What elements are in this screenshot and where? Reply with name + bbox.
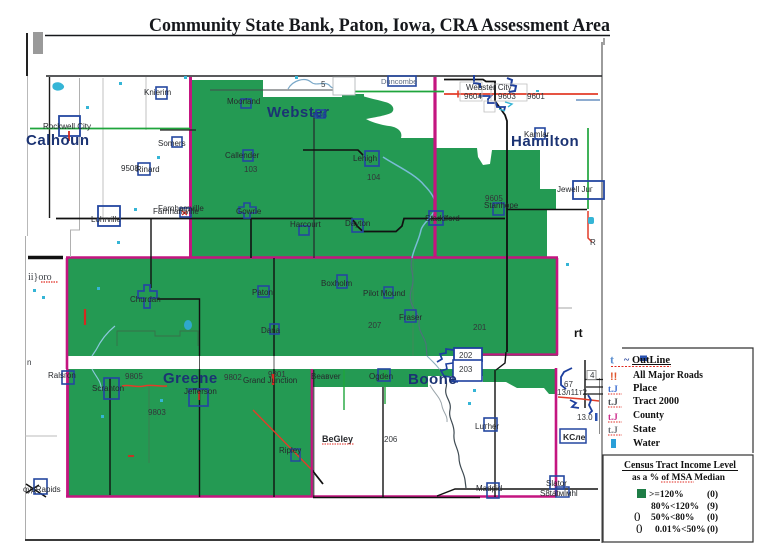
svg-text:Census Tract Income Level: Census Tract Income Level <box>624 460 736 471</box>
svg-text:All Major Roads: All Major Roads <box>633 370 703 381</box>
svg-text:(0): (0) <box>707 512 718 523</box>
svg-text:Jefferson: Jefferson <box>184 387 217 396</box>
svg-text:Tract 2000: Tract 2000 <box>633 396 679 407</box>
svg-text:Pilot Mound: Pilot Mound <box>363 289 405 298</box>
svg-text:Gowrie: Gowrie <box>236 207 262 216</box>
svg-text:>=120%: >=120% <box>649 490 684 500</box>
svg-text:n: n <box>27 358 31 367</box>
svg-text:Luтher: Luтher <box>475 422 499 431</box>
svg-text:13л11т2: 13л11т2 <box>557 388 588 397</box>
svg-text:Scranton: Scranton <box>92 384 124 393</box>
svg-text:Kamlar: Kamlar <box>524 130 550 139</box>
svg-text:9603: 9603 <box>498 92 516 101</box>
svg-text:Knierim: Knierim <box>144 88 171 97</box>
svg-text:Fraser: Fraser <box>399 313 422 322</box>
svg-text:80%<120%: 80%<120% <box>651 502 699 512</box>
svg-text:13.0: 13.0 <box>577 413 593 422</box>
svg-text:Ogden: Ogden <box>369 372 393 381</box>
svg-text:Moorland: Moorland <box>227 97 260 106</box>
svg-text:as a % of MSA Median: as a % of MSA Median <box>632 473 726 483</box>
svg-text:203: 203 <box>459 365 473 374</box>
svg-text:Calhoun: Calhoun <box>26 132 90 149</box>
svg-text:207: 207 <box>368 321 382 330</box>
svg-text:Callender: Callender <box>225 151 260 160</box>
svg-text:Slаtоr: Slаtоr <box>546 479 567 488</box>
svg-text:Duncombe: Duncombe <box>381 77 417 86</box>
svg-text:Mаdрid: Mаdрid <box>476 484 502 493</box>
svg-text:KCлe: KCлe <box>563 432 586 442</box>
svg-text:Dayton: Dayton <box>345 219 370 228</box>
svg-text:Greene: Greene <box>163 370 218 387</box>
svg-text:5: 5 <box>321 80 326 89</box>
svg-text:Ripley: Ripley <box>279 446 301 455</box>
svg-text:Grand Junction: Grand Junction <box>243 376 297 385</box>
svg-text:BeGley: BeGley <box>322 434 353 444</box>
svg-text:t: t <box>610 353 614 367</box>
svg-text:t.J: t.J <box>608 425 618 435</box>
svg-text:103: 103 <box>244 165 258 174</box>
svg-text:Rаlsгon: Rаlsгon <box>48 371 76 380</box>
svg-text:Community State Bank, Paton, I: Community State Bank, Paton, Iowa, CRA A… <box>149 15 610 36</box>
svg-text:(9): (9) <box>707 501 718 512</box>
svg-text:Somers: Somers <box>158 139 186 148</box>
svg-text:S8tаtмlмhl: S8tаtмlмhl <box>540 489 578 498</box>
svg-text:Beавver: Beавver <box>311 372 341 381</box>
svg-text:Place: Place <box>633 383 657 394</box>
svg-text:Lohrville: Lohrville <box>91 215 121 224</box>
svg-text:9805: 9805 <box>125 372 143 381</box>
svg-text:!!: !! <box>610 371 617 383</box>
svg-text:Webster City: Webster City <box>466 83 512 92</box>
svg-text:оудRapids: оудRapids <box>23 485 61 494</box>
svg-text:ii}oro: ii}oro <box>28 272 52 283</box>
svg-text:Churdan: Churdan <box>130 295 161 304</box>
svg-text:Staddfоrd: Staddfоrd <box>425 214 460 223</box>
svg-text:(0): (0) <box>707 489 718 500</box>
svg-text:9802: 9802 <box>224 373 242 382</box>
svg-text:9601: 9601 <box>527 92 545 101</box>
svg-text:Water: Water <box>633 438 660 449</box>
svg-text:206: 206 <box>384 435 398 444</box>
svg-text:Paton: Paton <box>252 288 273 297</box>
svg-text:202: 202 <box>459 351 473 360</box>
svg-text:t.J: t.J <box>608 412 618 422</box>
svg-text:тв6: тв6 <box>312 110 327 120</box>
svg-text:R: R <box>590 238 596 247</box>
svg-text:Boone: Boone <box>408 371 457 388</box>
svg-text:50%<80%: 50%<80% <box>651 513 694 523</box>
svg-text:t.J: t.J <box>608 397 618 407</box>
svg-text:Stanhope: Stanhope <box>484 201 519 210</box>
svg-text:Boxholm: Boxholm <box>321 279 352 288</box>
svg-text:201: 201 <box>473 323 487 332</box>
svg-text:4: 4 <box>590 371 595 380</box>
svg-text:9604: 9604 <box>464 92 482 101</box>
svg-text:State: State <box>633 424 656 435</box>
svg-text:Rinard: Rinard <box>136 165 160 174</box>
svg-text:t.J: t.J <box>608 384 618 394</box>
svg-text:Farnhamville: Farnhamville <box>158 204 204 213</box>
svg-text:104: 104 <box>367 173 381 182</box>
svg-text:0.01%<50%: 0.01%<50% <box>655 525 706 535</box>
svg-text:(0): (0) <box>707 524 718 535</box>
svg-text:Rockwell City: Rockwell City <box>43 122 91 131</box>
svg-text:Dana: Dana <box>261 326 281 335</box>
svg-text:County: County <box>633 410 665 421</box>
svg-text:Harcourt: Harcourt <box>290 220 321 229</box>
svg-text:rt: rt <box>574 326 583 340</box>
svg-text:0: 0 <box>636 521 643 536</box>
svg-text:9803: 9803 <box>148 408 166 417</box>
svg-text:Lehigh: Lehigh <box>353 154 377 163</box>
svg-text:Jewell Juг: Jewell Juг <box>557 185 593 194</box>
svg-text:~: ~ <box>624 355 630 366</box>
